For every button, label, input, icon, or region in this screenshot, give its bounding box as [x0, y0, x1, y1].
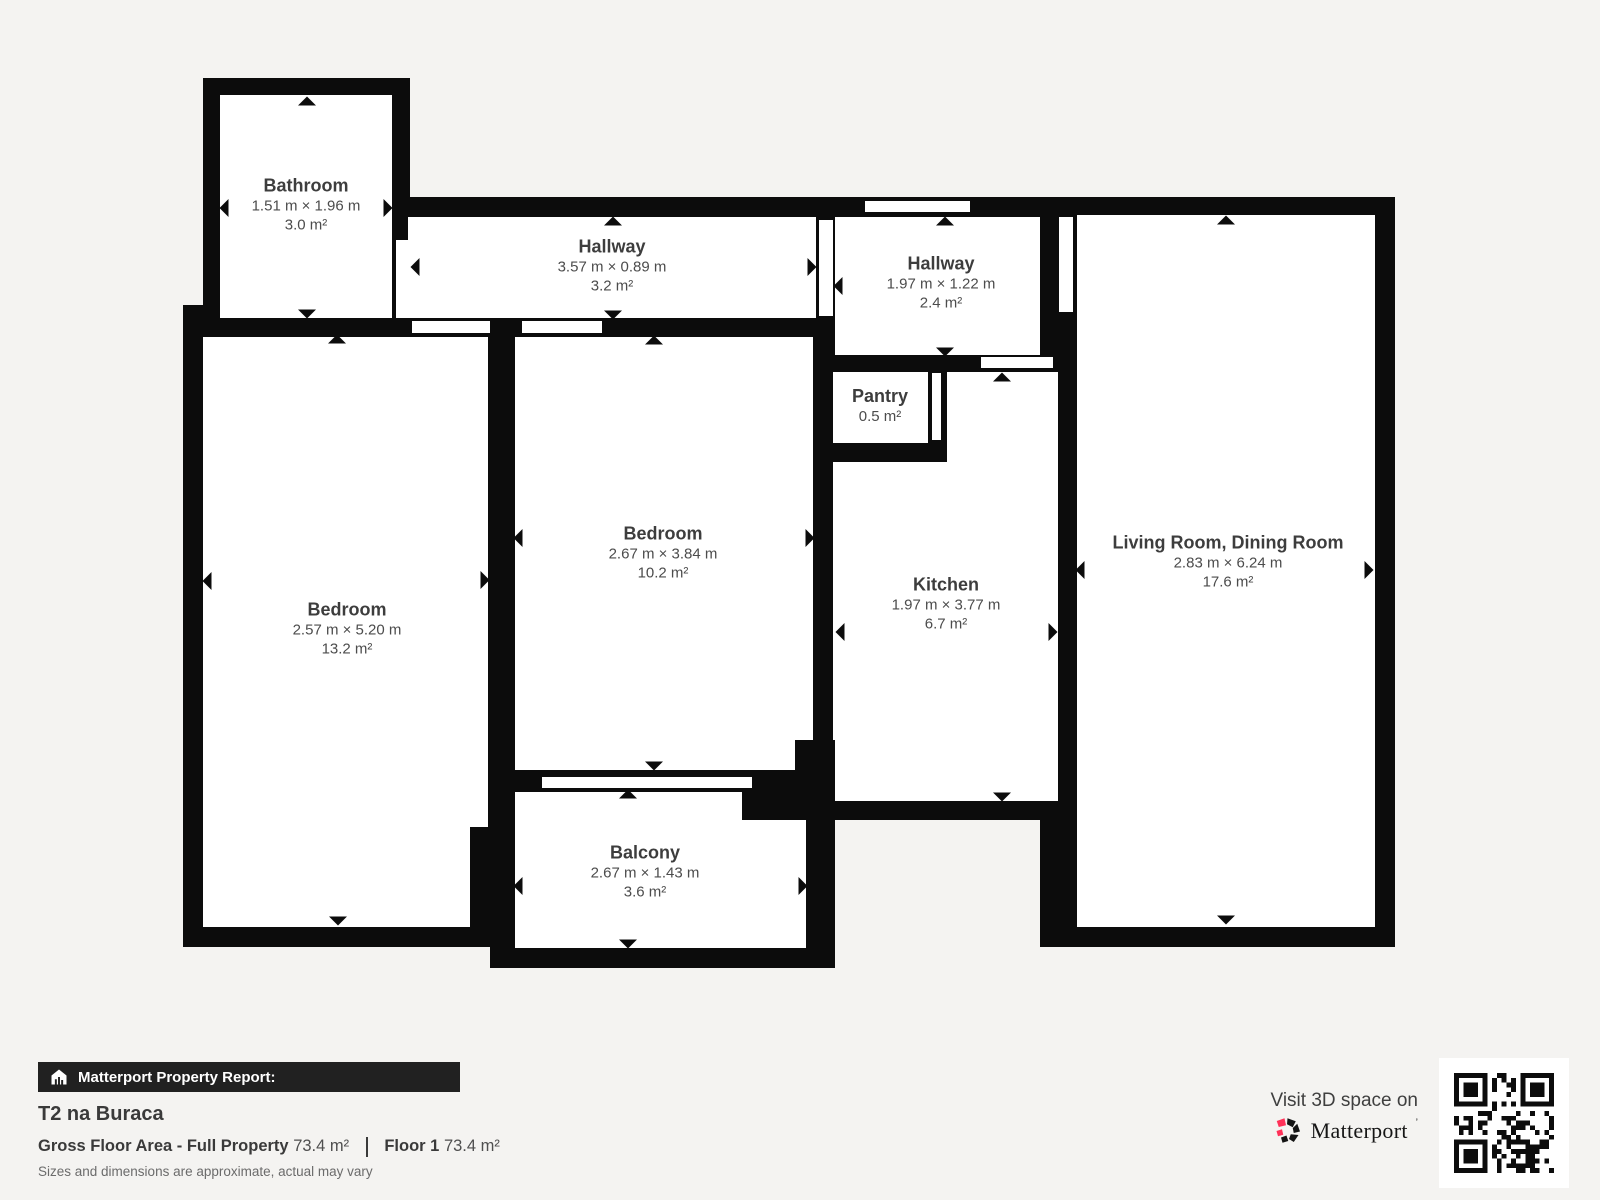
floor-area-summary: Gross Floor Area - Full Property 73.4 m²…	[38, 1134, 500, 1158]
room-label-hallway-top: Hallway 3.57 m × 0.89 m 3.2 m²	[558, 237, 667, 296]
floor-label: Floor 1	[384, 1137, 439, 1155]
room-label-bedroom-left: Bedroom 2.57 m × 5.20 m 13.2 m²	[293, 600, 402, 659]
measure-arrow-right-icon	[808, 258, 817, 276]
room-area: 3.6 m²	[591, 883, 700, 902]
wall-segment	[742, 787, 835, 820]
room-dimensions: 2.67 m × 1.43 m	[591, 864, 700, 883]
door-opening	[865, 201, 970, 212]
measure-arrow-down-icon	[329, 917, 347, 926]
measure-arrow-down-icon	[619, 940, 637, 949]
room-label-living-room: Living Room, Dining Room 2.83 m × 6.24 m…	[1113, 533, 1344, 592]
divider	[366, 1137, 368, 1157]
measure-arrow-left-icon	[1076, 561, 1085, 579]
room-dimensions: 2.83 m × 6.24 m	[1113, 554, 1344, 573]
measure-arrow-right-icon	[481, 571, 490, 589]
measure-arrow-left-icon	[220, 199, 229, 217]
room-area: 2.4 m²	[887, 294, 996, 313]
matterport-pinwheel-icon	[1273, 1116, 1303, 1146]
room-area: 0.5 m²	[852, 407, 908, 426]
room-name: Bedroom	[293, 600, 402, 621]
measure-arrow-down-icon	[604, 311, 622, 320]
door-opening	[522, 321, 602, 333]
measure-arrow-down-icon	[645, 762, 663, 771]
measure-arrow-down-icon	[1217, 916, 1235, 925]
disclaimer-text: Sizes and dimensions are approximate, ac…	[38, 1164, 373, 1179]
door-opening	[542, 777, 752, 788]
measure-arrow-right-icon	[806, 529, 815, 547]
measure-arrow-left-icon	[834, 277, 843, 295]
room-area: 17.6 m²	[1113, 573, 1344, 592]
measure-arrow-left-icon	[203, 572, 212, 590]
room-label-kitchen: Kitchen 1.97 m × 3.77 m 6.7 m²	[892, 575, 1001, 634]
room-dimensions: 1.97 m × 1.22 m	[887, 275, 996, 294]
measure-arrow-up-icon	[936, 217, 954, 226]
measure-arrow-down-icon	[298, 310, 316, 319]
wall-segment	[470, 827, 515, 947]
room-name: Kitchen	[892, 575, 1001, 596]
room-area: 13.2 m²	[293, 640, 402, 659]
door-opening	[981, 357, 1053, 368]
floor-value: 73.4 m²	[444, 1137, 500, 1155]
room-label-bedroom-middle: Bedroom 2.67 m × 3.84 m 10.2 m²	[609, 524, 718, 583]
room-dimensions: 3.57 m × 0.89 m	[558, 258, 667, 277]
property-title: T2 na Buraca	[38, 1102, 164, 1126]
room-dimensions: 1.51 m × 1.96 m	[252, 197, 361, 216]
measure-arrow-right-icon	[384, 199, 393, 217]
measure-arrow-left-icon	[514, 529, 523, 547]
measure-arrow-down-icon	[993, 793, 1011, 802]
room-name: Hallway	[558, 237, 667, 258]
room-floor-kitchen-upper	[947, 372, 1058, 462]
room-label-balcony: Balcony 2.67 m × 1.43 m 3.6 m²	[591, 843, 700, 902]
door-opening	[1059, 217, 1073, 312]
door-opening	[819, 220, 833, 316]
room-area: 3.2 m²	[558, 277, 667, 296]
matterport-logo: Matterport ʼ	[1270, 1116, 1418, 1146]
measure-arrow-up-icon	[604, 217, 622, 226]
report-bar: Matterport Property Report:	[38, 1062, 460, 1092]
visit-3d-block: Visit 3D space on Matterport ʼ	[1270, 1090, 1418, 1146]
room-name: Balcony	[591, 843, 700, 864]
room-label-bathroom: Bathroom 1.51 m × 1.96 m 3.0 m²	[252, 176, 361, 235]
room-label-pantry: Pantry 0.5 m²	[852, 386, 908, 426]
door-opening	[932, 373, 941, 440]
floorplan-report-page: { "plan": { "rooms": [ {"name": "Bathroo…	[0, 0, 1600, 1200]
qr-code-pattern	[1454, 1073, 1554, 1173]
gfa-label: Gross Floor Area - Full Property	[38, 1137, 289, 1155]
measure-arrow-down-icon	[936, 348, 954, 357]
room-dimensions: 2.67 m × 3.84 m	[609, 545, 718, 564]
room-label-hallway: Hallway 1.97 m × 1.22 m 2.4 m²	[887, 254, 996, 313]
door-opening	[396, 240, 408, 318]
measure-arrow-up-icon	[328, 335, 346, 344]
measure-arrow-right-icon	[1365, 561, 1374, 579]
measure-arrow-right-icon	[799, 877, 808, 895]
measure-arrow-left-icon	[514, 877, 523, 895]
measure-arrow-up-icon	[1217, 216, 1235, 225]
room-name: Bathroom	[252, 176, 361, 197]
room-name: Bedroom	[609, 524, 718, 545]
door-opening	[412, 321, 490, 333]
room-area: 6.7 m²	[892, 615, 1001, 634]
room-name: Hallway	[887, 254, 996, 275]
measure-arrow-left-icon	[836, 623, 845, 641]
visit-3d-text: Visit 3D space on	[1270, 1090, 1418, 1112]
floor-plan: Bathroom 1.51 m × 1.96 m 3.0 m² Hallway …	[0, 0, 1600, 1000]
matterport-trademark: ʼ	[1416, 1118, 1418, 1129]
wall-segment	[795, 740, 835, 792]
measure-arrow-up-icon	[298, 97, 316, 106]
room-name: Living Room, Dining Room	[1113, 533, 1344, 554]
measure-arrow-left-icon	[411, 258, 420, 276]
room-name: Pantry	[852, 386, 908, 407]
matterport-wordmark: Matterport	[1311, 1118, 1408, 1144]
measure-arrow-right-icon	[1049, 277, 1058, 295]
measure-arrow-up-icon	[993, 373, 1011, 382]
gfa-value: 73.4 m²	[293, 1137, 349, 1155]
room-dimensions: 2.57 m × 5.20 m	[293, 621, 402, 640]
room-area: 3.0 m²	[252, 216, 361, 235]
measure-arrow-right-icon	[1049, 623, 1058, 641]
measure-arrow-up-icon	[619, 790, 637, 799]
report-bar-label: Matterport Property Report:	[78, 1069, 276, 1086]
house-report-icon	[50, 1068, 68, 1086]
room-area: 10.2 m²	[609, 564, 718, 583]
room-dimensions: 1.97 m × 3.77 m	[892, 596, 1001, 615]
qr-code	[1439, 1058, 1569, 1188]
measure-arrow-up-icon	[645, 336, 663, 345]
